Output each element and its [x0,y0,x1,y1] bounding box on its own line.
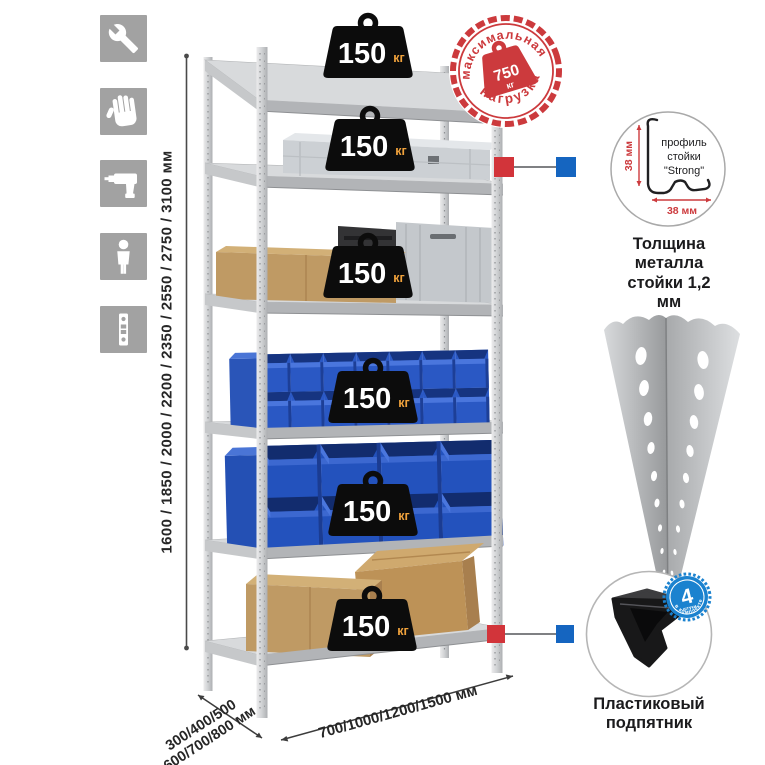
rack-illustration: 150 кг 150 кг 150 кг 150 кг 150 кг [0,0,765,765]
profile-dim-horizontal: 38 мм [667,205,697,217]
profile-label-3: "Strong" [664,165,704,177]
height-dimension-label: 1600 / 1850 / 2000 / 2200 / 2350 / 2550 … [159,150,176,553]
load-value: 150 [338,258,386,290]
load-value: 150 [340,131,388,163]
foot-caption-line-1: Пластиковый [593,695,704,714]
load-value: 150 [342,611,390,643]
height-dimension-line [184,54,189,651]
load-value: 150 [343,383,391,415]
profile-caption-line-1: Толщина металла [621,235,717,274]
load-unit: кг [393,51,404,65]
load-value: 150 [343,496,391,528]
foot-connector [487,625,574,643]
load-unit: кг [398,509,409,523]
connector-blue-square [556,625,574,643]
connector-red-square [487,625,505,643]
foot-caption-line-2: подпятник [593,714,704,733]
load-value: 150 [338,38,386,70]
load-unit: кг [397,624,408,638]
profile-label-2: стойки [667,151,701,163]
profile-caption-line-2: стойки 1,2 мм [621,274,717,313]
connector-red-square [494,157,514,177]
shelving-infographic: 150 кг 150 кг 150 кг 150 кг 150 кг [0,0,765,765]
connector-blue-square [556,157,576,177]
profile-connector [494,157,576,177]
profile-detail-circle: 38 мм 38 мм профиль стойки "Strong" [611,112,725,226]
plastic-foot-circle: 4 штуки в комплекте [587,569,715,696]
load-unit: кг [395,144,406,158]
load-unit: кг [393,271,404,285]
load-unit: кг [398,396,409,410]
profile-label-1: профиль [661,137,707,149]
foot-caption: Пластиковый подпятник [593,695,704,734]
profile-dim-vertical: 38 мм [623,141,635,171]
profile-caption: Толщина металла стойки 1,2 мм [621,235,717,313]
load-badge-1: 150 кг [323,16,412,79]
